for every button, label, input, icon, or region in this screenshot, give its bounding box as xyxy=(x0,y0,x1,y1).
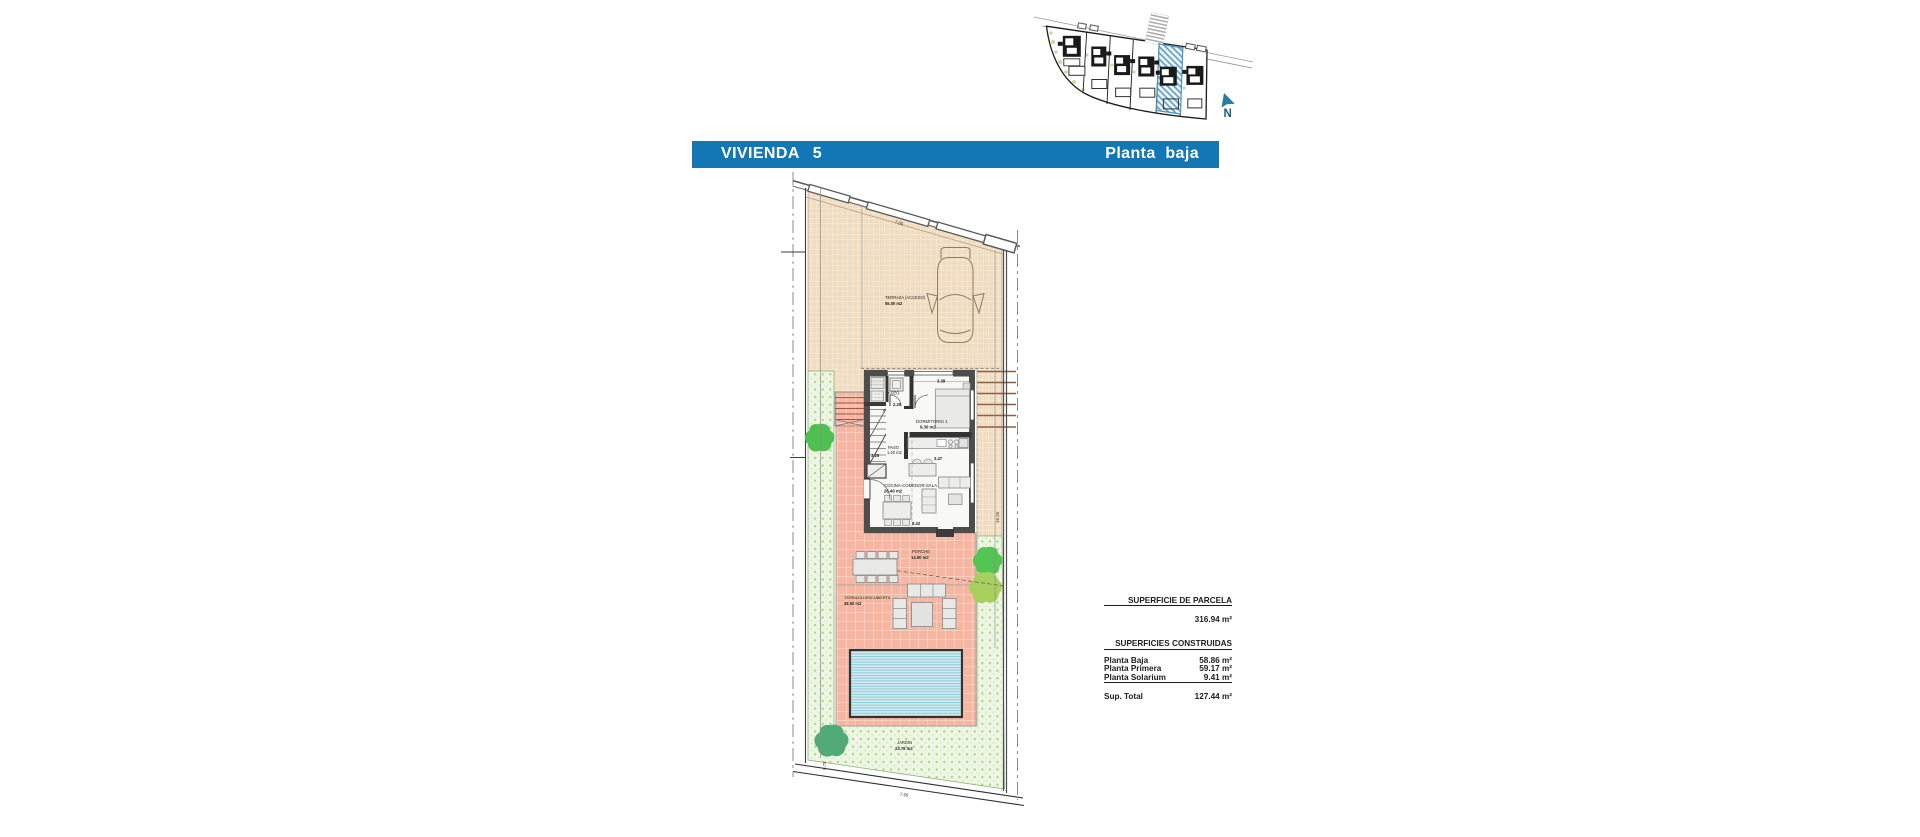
svg-text:JARDIN: JARDIN xyxy=(897,740,912,745)
svg-text:DORMITORIO 1: DORMITORIO 1 xyxy=(916,419,948,424)
svg-text:55.00 m2: 55.00 m2 xyxy=(885,301,903,306)
svg-text:3.25: 3.25 xyxy=(871,453,880,458)
svg-text:7.66: 7.66 xyxy=(900,792,910,798)
svg-text:COCINA-COMEDOR-SALA: COCINA-COMEDOR-SALA xyxy=(884,483,937,488)
svg-text:5.75: 5.75 xyxy=(822,761,827,770)
svg-text:8.42: 8.42 xyxy=(912,521,921,526)
svg-text:48.50 m2: 48.50 m2 xyxy=(844,601,862,606)
svg-text:N: N xyxy=(1224,108,1232,120)
svg-text:TERRAZA DESCUBIERTA: TERRAZA DESCUBIERTA xyxy=(844,595,891,600)
svg-text:2.25: 2.25 xyxy=(893,402,902,407)
svg-text:3.38: 3.38 xyxy=(937,379,946,384)
svg-text:23.76 m2: 23.76 m2 xyxy=(895,746,913,751)
svg-text:26.40 m2: 26.40 m2 xyxy=(884,489,903,494)
svg-text:3.47: 3.47 xyxy=(934,456,943,461)
svg-text:9.30 m2: 9.30 m2 xyxy=(920,425,936,430)
svg-text:TERRAZA (ACCESO): TERRAZA (ACCESO) xyxy=(885,295,926,300)
svg-text:16.15: 16.15 xyxy=(995,511,1000,523)
svg-text:14.90 m2: 14.90 m2 xyxy=(911,555,929,560)
svg-text:ASEO: ASEO xyxy=(888,391,899,396)
svg-text:PORCHE: PORCHE xyxy=(912,549,930,554)
svg-text:1.40 m2: 1.40 m2 xyxy=(887,450,903,455)
